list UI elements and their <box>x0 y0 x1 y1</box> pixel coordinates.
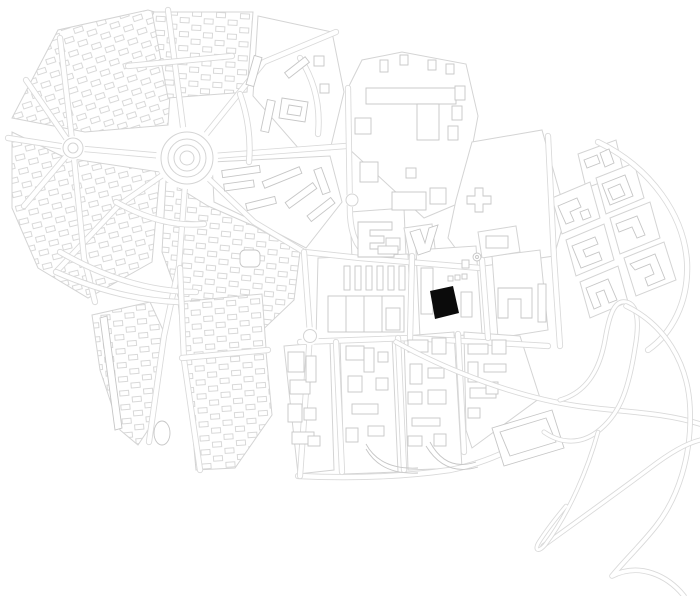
building-outline <box>538 284 546 322</box>
building-outline <box>154 421 170 445</box>
district-grid-block-7 <box>624 242 676 296</box>
building-outline <box>399 266 405 290</box>
building-outline <box>430 188 446 204</box>
central-star-roundabout-ground <box>156 127 218 189</box>
building-outline <box>446 64 454 74</box>
building-outline <box>448 276 453 281</box>
building-outline <box>346 428 358 442</box>
building-outline <box>304 408 316 420</box>
building-outline <box>434 434 446 446</box>
building-outline <box>364 348 374 372</box>
building-outline <box>455 275 460 280</box>
building-outline <box>452 106 462 120</box>
building-outline <box>288 352 304 372</box>
building-outline <box>308 436 320 446</box>
building-outline <box>378 352 388 362</box>
building-outline <box>386 308 400 330</box>
building-outline <box>288 404 302 422</box>
building-outline <box>360 162 378 182</box>
small-plaza-circle-ground <box>345 193 359 207</box>
district-radial-district-nw <box>12 10 175 132</box>
building-outline <box>412 418 440 426</box>
building-outline <box>400 55 408 65</box>
building-outline <box>344 266 350 290</box>
district-west-block-upper <box>178 294 266 356</box>
building-outline <box>406 168 416 178</box>
road-column-street-bc <box>398 338 404 470</box>
building-outline <box>462 260 469 268</box>
building-outline <box>410 364 422 384</box>
building-outline <box>352 404 378 414</box>
building-outline <box>376 378 388 390</box>
building-outline <box>428 390 446 404</box>
building-outline <box>448 126 458 140</box>
building-outline <box>484 364 506 372</box>
building-outline <box>378 246 398 254</box>
building-outline <box>408 392 422 404</box>
building-outline <box>492 340 506 354</box>
building-outline <box>355 118 371 134</box>
building-outline <box>366 266 372 290</box>
building-outline <box>428 60 436 70</box>
site-plan-map <box>0 0 700 596</box>
building-outline <box>306 356 316 382</box>
building-outline <box>355 266 361 290</box>
ornament-circle <box>476 256 479 259</box>
building-outline <box>348 376 362 392</box>
building-outline <box>320 84 329 93</box>
building-outline <box>462 274 467 279</box>
building-outline <box>432 338 446 354</box>
building-outline <box>366 88 456 104</box>
building-outline <box>392 192 426 210</box>
building-outline <box>408 436 422 446</box>
west-roundabout-ground <box>61 136 85 160</box>
site-plan-figure <box>0 0 700 596</box>
road-center-street-west <box>410 256 412 340</box>
road-center-street-east <box>482 260 488 338</box>
building-outline <box>468 344 488 354</box>
building-outline <box>417 104 439 140</box>
building-outline <box>377 266 383 290</box>
building-outline <box>368 426 384 436</box>
building-outline <box>455 86 465 100</box>
building-outline <box>287 105 302 116</box>
building-outline <box>240 250 260 267</box>
building-outline <box>314 56 324 66</box>
building-outline <box>346 346 364 360</box>
building-outline <box>468 408 480 418</box>
building-outline <box>380 60 388 72</box>
building-outline <box>428 368 444 378</box>
building-outline <box>461 292 472 317</box>
building-outline <box>388 266 394 290</box>
building-outline <box>486 236 508 248</box>
